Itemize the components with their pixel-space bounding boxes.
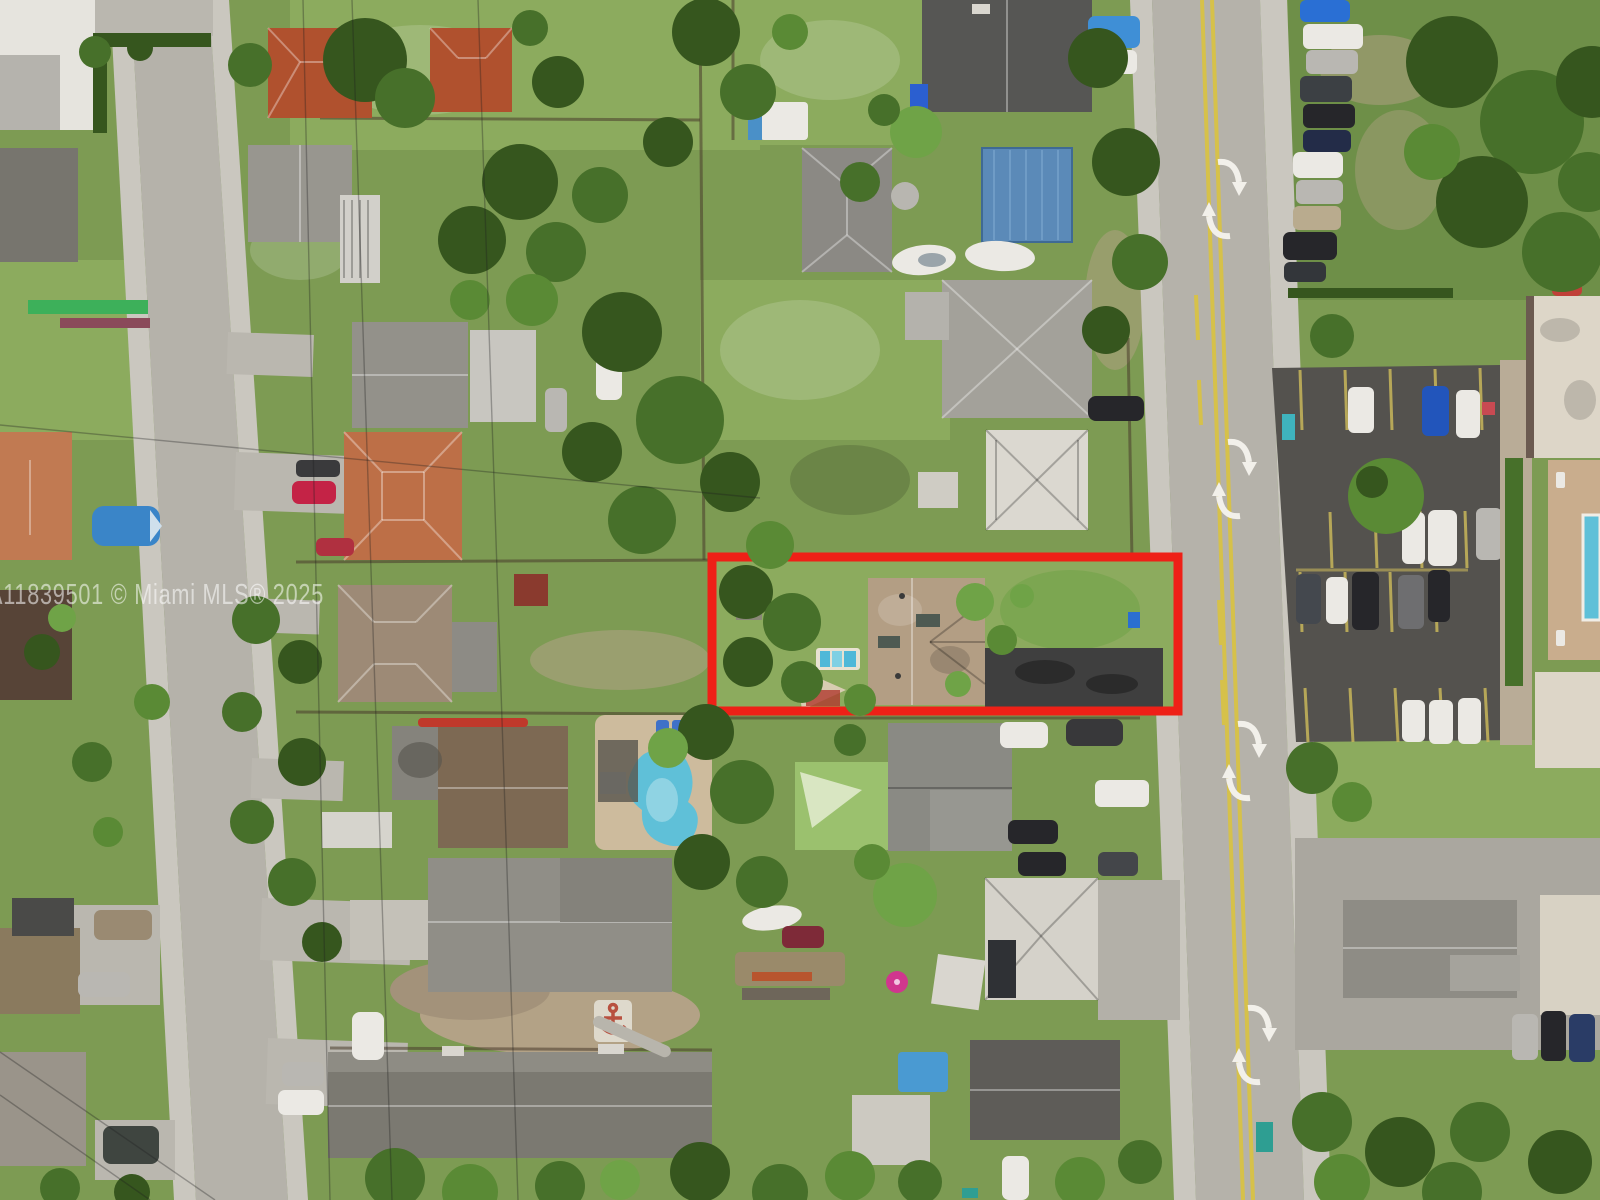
parked-car xyxy=(1512,1014,1538,1060)
house-gray-hip-top xyxy=(802,148,892,272)
palm-shadow xyxy=(1086,674,1138,694)
parked-car xyxy=(1002,1156,1029,1200)
subject-plunge-pool xyxy=(816,648,860,670)
parked-car xyxy=(1296,574,1321,624)
aerial-scene: A11839501 © Miami MLS® 2025 xyxy=(0,0,1600,1200)
parked-van xyxy=(1098,852,1138,876)
house-gray-flat xyxy=(888,723,1012,851)
house-roof-white-se xyxy=(1540,895,1600,1015)
white-shed xyxy=(931,954,985,1010)
recycle-bins xyxy=(1282,414,1295,440)
subject-driveway xyxy=(985,648,1163,708)
parked-car xyxy=(78,972,130,997)
parked-car xyxy=(1300,76,1352,102)
parked-car xyxy=(1326,577,1348,624)
blue-tarp xyxy=(898,1052,948,1092)
long-building-g xyxy=(328,1044,712,1158)
parked-pickup xyxy=(1000,722,1048,748)
east-parking-area xyxy=(1256,283,1600,1152)
parked-car xyxy=(1283,232,1337,260)
house-red-tile-b xyxy=(430,28,512,112)
parked-car xyxy=(1293,152,1343,178)
satellite-dish xyxy=(891,182,919,210)
blue-metal-building xyxy=(982,148,1072,242)
parked-car xyxy=(1303,24,1363,49)
parked-car xyxy=(1428,570,1450,622)
parked-car xyxy=(282,1062,324,1086)
astroturf-strip xyxy=(28,300,148,314)
parked-car xyxy=(296,460,340,477)
utility-box xyxy=(1128,612,1140,628)
apartment-roof-south xyxy=(1535,672,1600,768)
parked-truck xyxy=(103,1126,159,1164)
parked-car xyxy=(1018,852,1066,876)
house-roof-terracotta-w xyxy=(0,432,72,560)
parked-car xyxy=(1569,1014,1595,1062)
dark-building-top xyxy=(922,0,1092,112)
parked-car xyxy=(316,538,354,556)
parked-car xyxy=(1306,50,1358,74)
parked-car xyxy=(1296,180,1343,204)
parked-suv xyxy=(1088,396,1144,421)
parked-car xyxy=(1348,387,1374,433)
house-roof-gray-w xyxy=(0,1052,86,1166)
house-terracotta-c xyxy=(344,432,462,560)
house-gray-c xyxy=(352,322,536,428)
solar-panels xyxy=(988,940,1016,998)
bin xyxy=(962,1188,978,1198)
parked-car xyxy=(1422,386,1449,436)
parked-suv xyxy=(1008,820,1058,844)
house-white-hip-south xyxy=(985,878,1098,1000)
parked-car xyxy=(278,1090,324,1115)
parked-car xyxy=(1476,508,1502,560)
house-roof-brown-w xyxy=(0,928,80,1014)
parked-car xyxy=(1300,0,1350,22)
parked-car xyxy=(1284,262,1326,282)
parked-car xyxy=(1428,510,1457,566)
building-roof xyxy=(0,148,78,262)
mls-watermark: A11839501 © Miami MLS® 2025 xyxy=(0,579,324,611)
parked-car xyxy=(1402,700,1425,742)
parked-car xyxy=(1541,1011,1566,1061)
aerial-photo: A11839501 © Miami MLS® 2025 xyxy=(0,0,1600,1200)
parked-truck xyxy=(94,910,152,940)
parked-car xyxy=(1352,572,1379,630)
parked-car xyxy=(545,388,567,432)
parked-car xyxy=(1429,700,1453,744)
parked-car xyxy=(1293,206,1341,230)
parked-car xyxy=(352,1012,384,1060)
palm-shadow xyxy=(1015,660,1075,684)
kayak xyxy=(418,718,528,727)
red-shed xyxy=(514,574,548,606)
building-dark-w xyxy=(12,898,74,936)
tarped-boat xyxy=(92,506,160,546)
apartment-pool xyxy=(1583,515,1600,620)
parked-car xyxy=(1456,390,1480,438)
parked-suv xyxy=(1066,719,1123,746)
white-van xyxy=(1095,780,1149,807)
parked-car xyxy=(1303,130,1351,152)
parked-car xyxy=(1458,698,1481,744)
dumpster xyxy=(1256,1122,1273,1152)
parked-car xyxy=(1398,575,1424,629)
parked-car xyxy=(1303,104,1355,128)
pavement-marking xyxy=(1482,402,1495,415)
